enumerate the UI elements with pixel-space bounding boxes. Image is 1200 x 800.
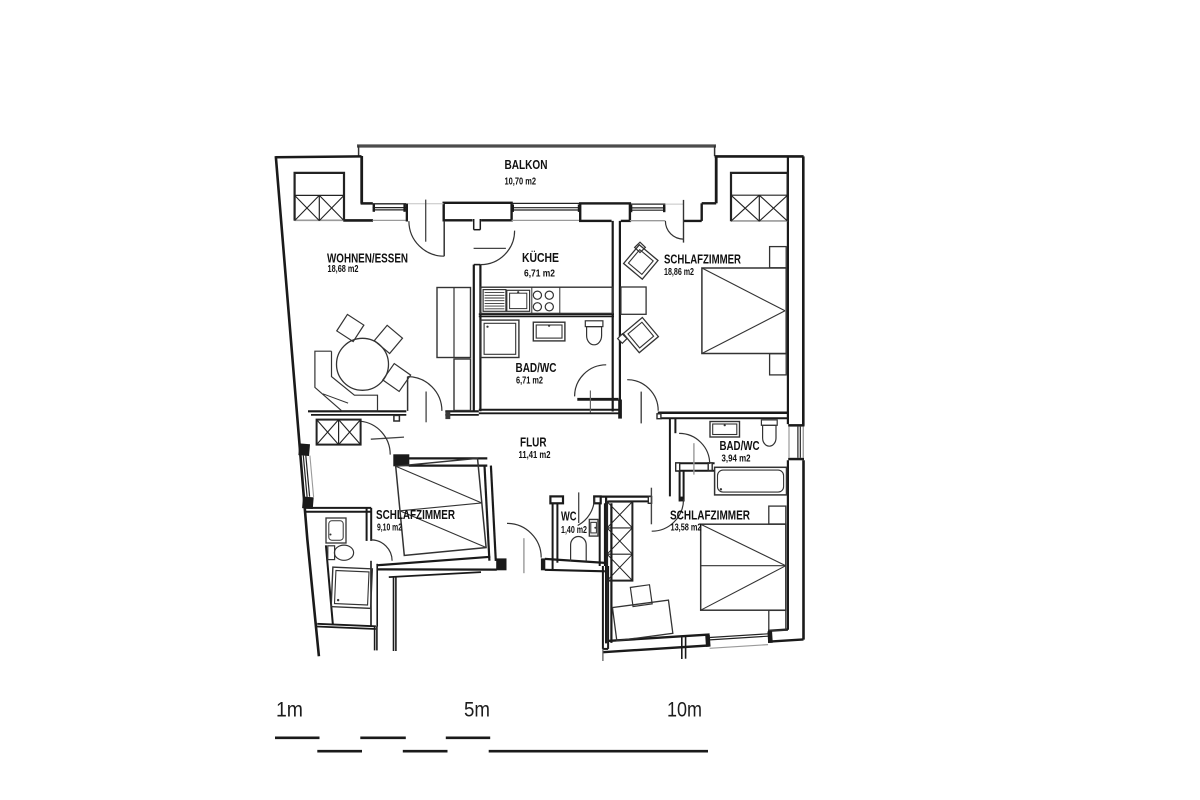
svg-text:18,68 m2: 18,68 m2 xyxy=(328,263,359,275)
svg-text:FLUR: FLUR xyxy=(520,435,547,450)
svg-text:9,10 m2: 9,10 m2 xyxy=(377,522,402,534)
svg-text:WC: WC xyxy=(561,509,577,524)
svg-text:SCHLAFZIMMER: SCHLAFZIMMER xyxy=(664,252,741,267)
svg-text:3,94 m2: 3,94 m2 xyxy=(722,453,751,465)
svg-text:5m: 5m xyxy=(464,699,490,722)
svg-text:BALKON: BALKON xyxy=(505,157,548,172)
svg-text:11,41 m2: 11,41 m2 xyxy=(519,449,551,461)
svg-text:13,58 m2: 13,58 m2 xyxy=(671,522,702,534)
svg-text:BAD/WC: BAD/WC xyxy=(720,438,760,453)
svg-text:SCHLAFZIMMER: SCHLAFZIMMER xyxy=(670,508,750,523)
svg-text:6,71 m2: 6,71 m2 xyxy=(524,268,555,280)
svg-text:BAD/WC: BAD/WC xyxy=(516,360,557,375)
svg-text:18,86 m2: 18,86 m2 xyxy=(664,266,694,278)
svg-text:10m: 10m xyxy=(667,699,702,722)
svg-text:KÜCHE: KÜCHE xyxy=(522,250,559,265)
svg-text:10,70 m2: 10,70 m2 xyxy=(505,176,537,188)
svg-text:SCHLAFZIMMER: SCHLAFZIMMER xyxy=(376,507,455,522)
svg-text:1m: 1m xyxy=(276,699,303,722)
svg-text:6,71 m2: 6,71 m2 xyxy=(516,375,543,387)
svg-text:1,40 m2: 1,40 m2 xyxy=(561,524,587,536)
